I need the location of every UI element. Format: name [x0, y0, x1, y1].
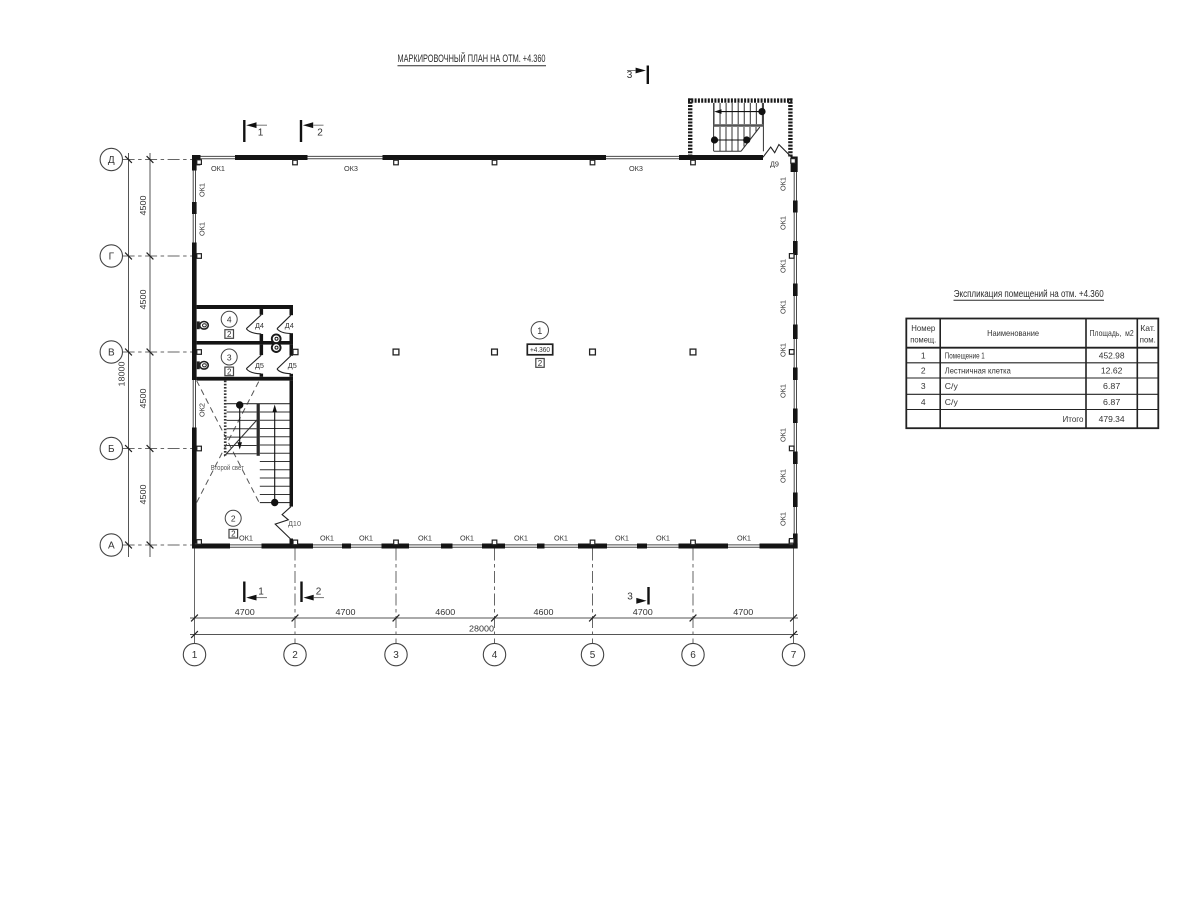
- svg-text:Д5: Д5: [288, 361, 297, 370]
- svg-text:ОК1: ОК1: [320, 534, 334, 543]
- svg-text:4500: 4500: [138, 484, 148, 504]
- svg-text:С/у: С/у: [945, 397, 959, 407]
- svg-text:Д9: Д9: [770, 159, 779, 168]
- svg-text:С/у: С/у: [945, 381, 959, 391]
- svg-text:В: В: [108, 348, 115, 359]
- svg-text:пом.: пом.: [1140, 335, 1156, 345]
- svg-text:ОК1: ОК1: [779, 343, 788, 357]
- svg-text:Лестничная клетка: Лестничная клетка: [945, 365, 1011, 375]
- svg-text:ОК1: ОК1: [779, 300, 788, 314]
- svg-text:4700: 4700: [235, 607, 255, 617]
- svg-text:4500: 4500: [138, 388, 148, 408]
- svg-text:3: 3: [393, 650, 399, 661]
- svg-text:3: 3: [227, 352, 232, 362]
- svg-text:А: А: [108, 541, 115, 552]
- svg-text:2: 2: [227, 367, 232, 376]
- svg-text:ОК1: ОК1: [615, 534, 629, 543]
- svg-text:1: 1: [921, 350, 926, 360]
- svg-text:1: 1: [258, 128, 264, 139]
- svg-text:ОК1: ОК1: [198, 183, 207, 197]
- svg-text:Д: Д: [108, 155, 115, 166]
- svg-text:7: 7: [791, 650, 797, 661]
- svg-text:4: 4: [492, 650, 498, 661]
- svg-text:ОК1: ОК1: [514, 534, 528, 543]
- svg-text:4500: 4500: [138, 289, 148, 309]
- svg-text:452.98: 452.98: [1099, 350, 1125, 360]
- svg-text:4500: 4500: [138, 195, 148, 215]
- svg-text:4600: 4600: [534, 607, 554, 617]
- svg-text:2: 2: [538, 359, 543, 368]
- svg-text:Экспликация помещений на отм.: Экспликация помещений на отм. +4.360: [954, 289, 1104, 300]
- svg-text:ОК3: ОК3: [344, 164, 358, 173]
- svg-text:3: 3: [921, 381, 926, 391]
- svg-text:12.62: 12.62: [1101, 365, 1123, 375]
- svg-text:ОК1: ОК1: [239, 534, 253, 543]
- svg-text:Д10: Д10: [288, 519, 301, 528]
- svg-text:479.34: 479.34: [1099, 414, 1125, 424]
- svg-text:Номер: Номер: [911, 323, 935, 333]
- svg-text:ОК3: ОК3: [629, 164, 643, 173]
- svg-text:Итого: Итого: [1063, 414, 1084, 424]
- svg-text:5: 5: [590, 650, 596, 661]
- svg-text:ОК1: ОК1: [779, 384, 788, 398]
- svg-text:ОК1: ОК1: [779, 216, 788, 230]
- svg-text:4700: 4700: [633, 607, 653, 617]
- svg-text:6: 6: [690, 650, 696, 661]
- svg-text:3: 3: [627, 70, 633, 81]
- svg-text:2: 2: [231, 530, 236, 539]
- svg-text:ОК1: ОК1: [656, 534, 670, 543]
- svg-text:1: 1: [192, 650, 198, 661]
- svg-text:помещ.: помещ.: [910, 335, 936, 345]
- svg-text:28000: 28000: [469, 623, 494, 633]
- svg-text:Помещение 1: Помещение 1: [945, 350, 985, 360]
- svg-text:ОК1: ОК1: [779, 428, 788, 442]
- svg-text:ОК2: ОК2: [198, 403, 207, 417]
- svg-text:Наименование: Наименование: [987, 328, 1039, 338]
- svg-text:Второй свет: Второй свет: [211, 464, 245, 472]
- svg-text:ОК1: ОК1: [211, 164, 225, 173]
- svg-text:4: 4: [921, 397, 926, 407]
- svg-text:6.87: 6.87: [1103, 397, 1120, 407]
- svg-text:4: 4: [227, 315, 232, 325]
- svg-text:ОК1: ОК1: [779, 469, 788, 483]
- svg-text:Д4: Д4: [285, 321, 294, 330]
- svg-text:2: 2: [317, 128, 323, 139]
- svg-text:ОК1: ОК1: [418, 534, 432, 543]
- svg-text:ОК1: ОК1: [554, 534, 568, 543]
- svg-text:Д5: Д5: [255, 361, 264, 370]
- svg-text:ОК1: ОК1: [737, 534, 751, 543]
- svg-text:1: 1: [537, 326, 542, 336]
- svg-text:2: 2: [227, 330, 232, 339]
- svg-text:Б: Б: [108, 444, 115, 455]
- svg-text:ОК1: ОК1: [779, 259, 788, 273]
- svg-text:2: 2: [921, 365, 926, 375]
- svg-text:Г: Г: [109, 252, 115, 263]
- svg-text:Кат.: Кат.: [1140, 323, 1155, 333]
- svg-text:ОК1: ОК1: [779, 177, 788, 191]
- svg-text:4700: 4700: [336, 607, 356, 617]
- svg-text:1: 1: [258, 587, 264, 598]
- svg-text:2: 2: [292, 650, 298, 661]
- svg-text:ОК1: ОК1: [198, 222, 207, 236]
- svg-text:18000: 18000: [117, 361, 127, 386]
- svg-text:ОК1: ОК1: [359, 534, 373, 543]
- svg-text:4700: 4700: [733, 607, 753, 617]
- svg-text:ОК1: ОК1: [779, 512, 788, 526]
- svg-text:ОК1: ОК1: [460, 534, 474, 543]
- svg-text:+4.360: +4.360: [530, 345, 550, 354]
- svg-text:3: 3: [627, 592, 633, 603]
- svg-text:4600: 4600: [435, 607, 455, 617]
- svg-text:МАРКИРОВОЧНЫЙ ПЛАН НА ОТМ. +4.: МАРКИРОВОЧНЫЙ ПЛАН НА ОТМ. +4.360: [398, 52, 546, 65]
- svg-text:2: 2: [316, 587, 322, 598]
- svg-text:Д4: Д4: [255, 321, 264, 330]
- svg-text:Площадь, м2: Площадь, м2: [1090, 328, 1134, 338]
- svg-text:2: 2: [231, 514, 236, 524]
- svg-text:6.87: 6.87: [1103, 381, 1120, 391]
